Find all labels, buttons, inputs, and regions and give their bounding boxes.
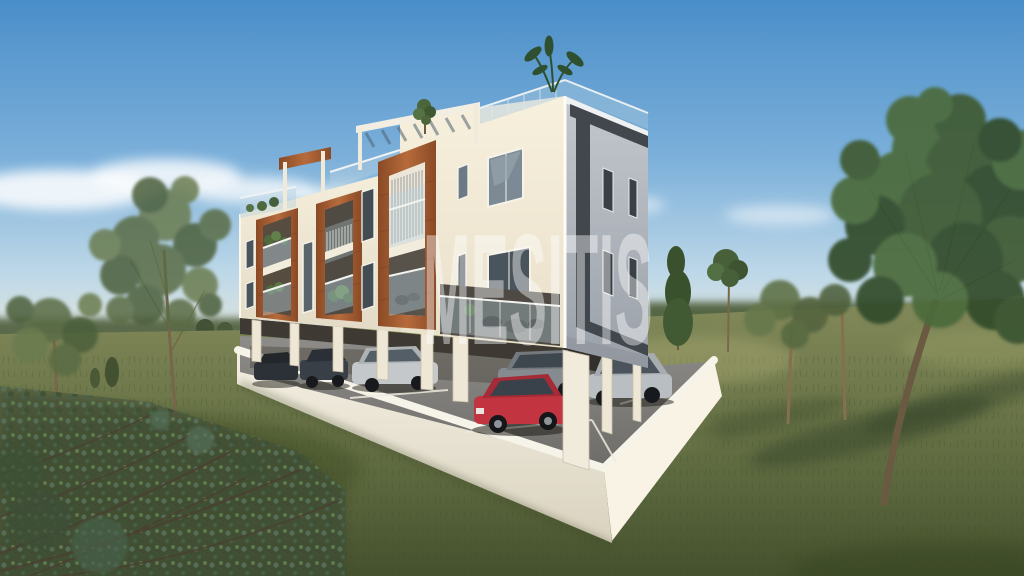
balcony-box-b — [316, 190, 362, 322]
render-canvas: MESITIS — [0, 0, 1024, 576]
balcony-box-a — [256, 208, 298, 322]
watermark-text: MESITIS — [423, 202, 653, 378]
narrow-window-1 — [303, 241, 313, 313]
